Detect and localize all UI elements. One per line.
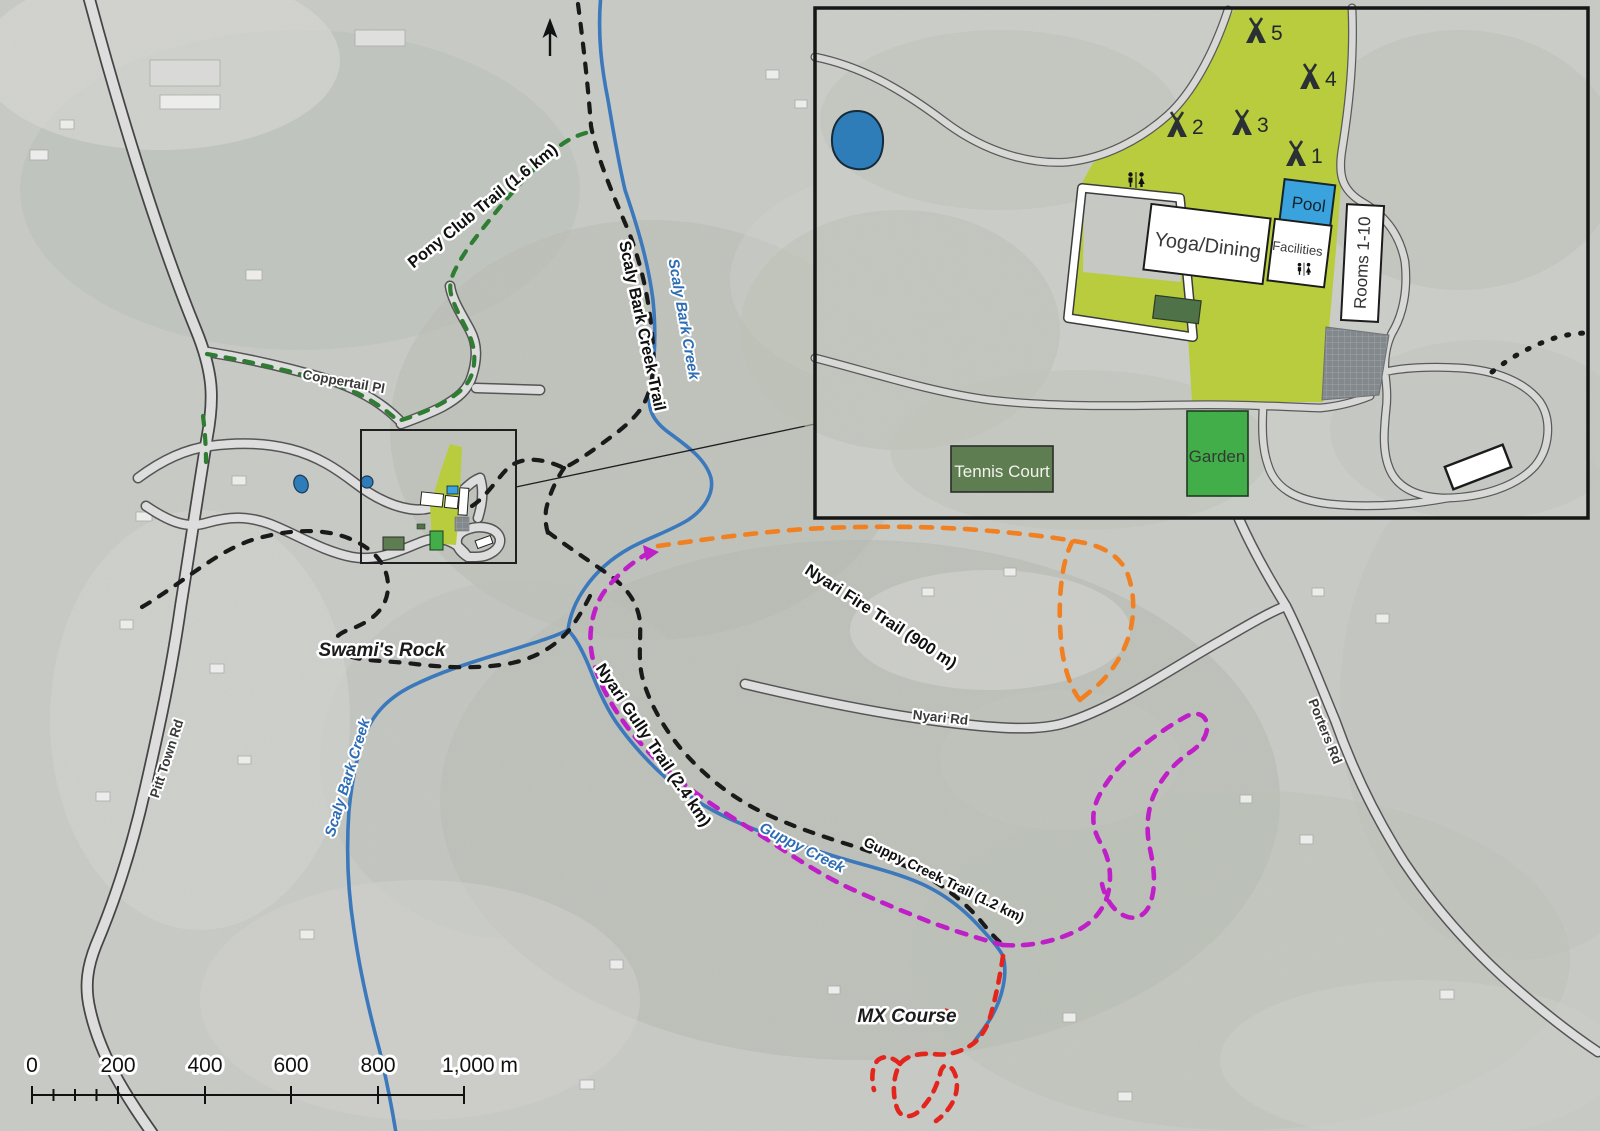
- scale-tick-400: 400: [187, 1054, 222, 1077]
- deck-structure: [1153, 295, 1201, 323]
- tennis-mini: [383, 537, 404, 550]
- mx-course-label: MX Course: [857, 1006, 957, 1027]
- garden-label: Garden: [1189, 447, 1246, 466]
- pool-mini: [447, 486, 458, 494]
- scale-tick-1000: 1,000 m: [442, 1054, 518, 1077]
- campsite-3-label: 3: [1257, 114, 1269, 137]
- rooms-mini: [458, 488, 469, 516]
- tennis-court-label: Tennis Court: [954, 462, 1050, 481]
- campsite-1-label: 1: [1311, 145, 1323, 168]
- campsite-5-label: 5: [1271, 22, 1283, 45]
- yoga-dining-mini: [420, 492, 443, 507]
- scale-tick-800: 800: [360, 1054, 395, 1077]
- scale-tick-600: 600: [273, 1054, 308, 1077]
- garden-mini: [430, 531, 443, 550]
- restroom-icon-camp: [1128, 172, 1144, 188]
- map-page: Pitt Town Rd Coppertail Pl Nyari Rd Port…: [0, 0, 1600, 1131]
- swamis-rock-label: Swami's Rock: [318, 640, 446, 661]
- parking-mini: [455, 517, 469, 531]
- parking-lot: [1322, 327, 1389, 400]
- pond-small-east: [361, 476, 373, 488]
- facilities-mini: [444, 495, 458, 508]
- inset-panel: Pool Yoga/Dining Facilities Rooms 1-10 T…: [740, 8, 1600, 530]
- campsite-4-label: 4: [1325, 68, 1337, 91]
- inset-pond: [832, 111, 883, 169]
- scale-tick-0: 0: [26, 1054, 38, 1077]
- map-canvas[interactable]: Pitt Town Rd Coppertail Pl Nyari Rd Port…: [0, 0, 1600, 1131]
- campsite-2-label: 2: [1192, 116, 1204, 139]
- scale-tick-200: 200: [100, 1054, 135, 1077]
